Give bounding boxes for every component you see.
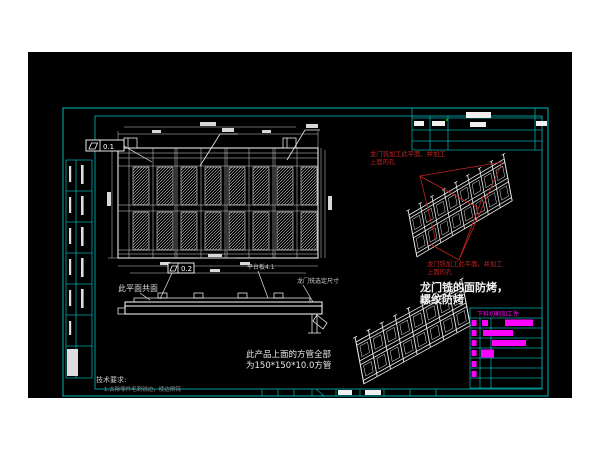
platform-note: 平台板4.1 — [247, 263, 275, 271]
parts-table-header: 下料切割加工件 — [477, 310, 519, 318]
tech-req-title: 技术要求: — [96, 375, 126, 384]
tube-note-line1: 此产品上面的方管全部 — [246, 349, 332, 360]
drawing-sheet[interactable] — [28, 52, 572, 398]
red-note-bottom-line2: 上面的孔 — [427, 267, 453, 276]
red-note-top-line1: 龙门铣加工此平面，并加工 — [370, 149, 446, 158]
coplanar-note: 此平面共面 — [118, 283, 158, 293]
gantry-size-note: 龙门铣选定尺寸 — [297, 277, 339, 285]
page-background: 0.1 0.2 此平面共面 — [0, 0, 600, 450]
tolerance-value-1: 0.1 — [103, 143, 114, 151]
cad-canvas[interactable]: 0.1 0.2 此平面共面 — [0, 0, 600, 450]
tech-req-item: 1.去除零件毛刺锐边，棱边倒钝 — [104, 385, 181, 393]
tube-note-line2: 为150*150*10.0方管 — [246, 360, 331, 371]
red-note-bottom-line1: 龙门铣加工此平面，并加工 — [427, 259, 503, 268]
tolerance-value-2: 0.2 — [181, 265, 192, 273]
red-note-top-line2: 上面的孔 — [370, 157, 396, 166]
